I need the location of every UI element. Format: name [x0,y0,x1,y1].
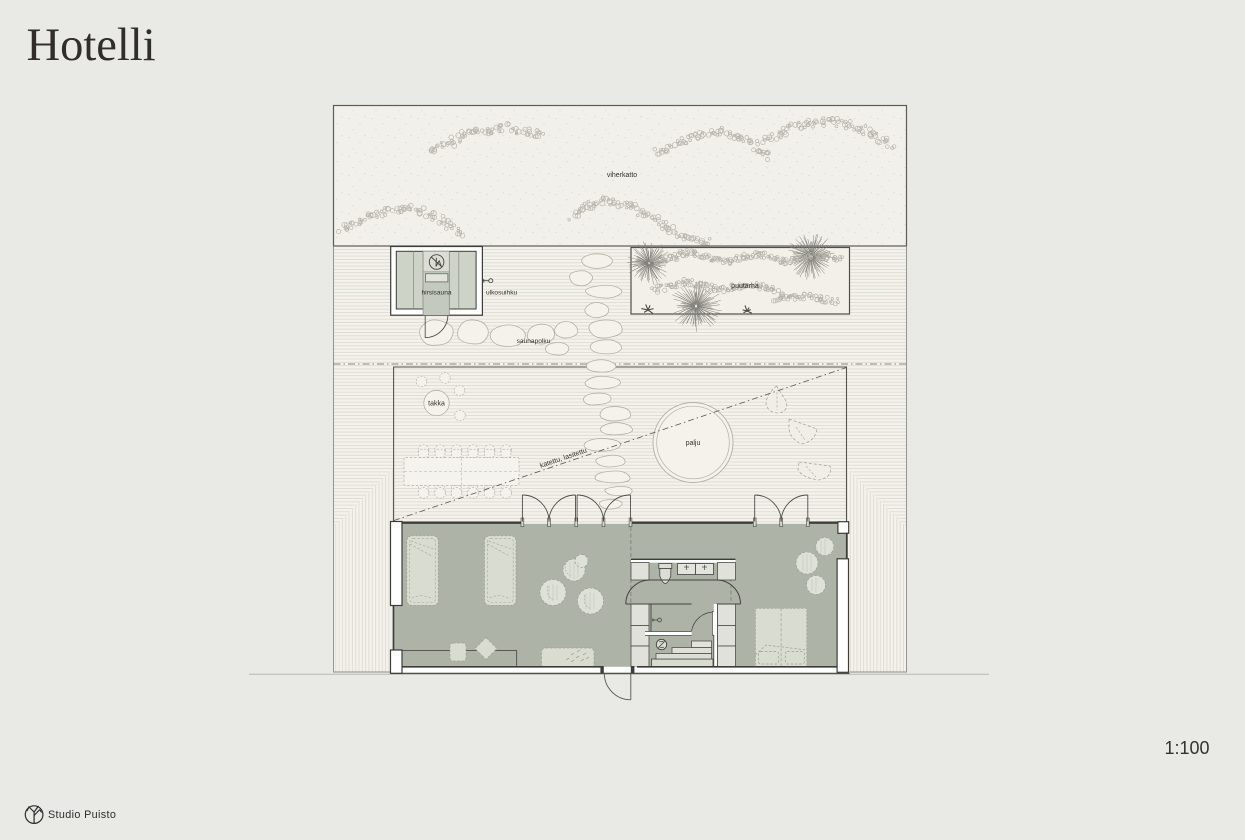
svg-text:palju: palju [686,440,701,447]
svg-text:puutarha: puutarha [731,283,759,290]
svg-text:takka: takka [428,401,445,408]
svg-text:ulkosuihku: ulkosuihku [486,289,517,296]
svg-text:Hotelli: Hotelli [27,20,156,71]
svg-text:Studio Puisto: Studio Puisto [48,809,116,821]
svg-text:viherkatto: viherkatto [607,172,637,179]
svg-text:saunapolku: saunapolku [517,338,551,345]
svg-text:1:100: 1:100 [1165,738,1210,758]
svg-text:hirsisauna: hirsisauna [421,289,451,296]
